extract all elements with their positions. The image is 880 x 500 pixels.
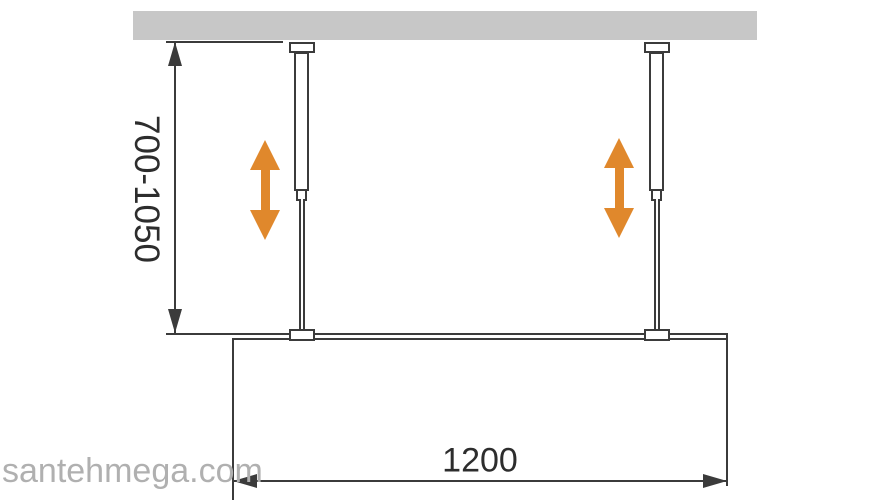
glass-right-edge [726, 333, 728, 486]
arrow-head-up [250, 140, 280, 170]
width-dimension-label: 1200 [442, 442, 518, 481]
vertical-double-arrow-icon [250, 140, 280, 240]
lower-rod [654, 199, 660, 331]
lower-rod [299, 199, 305, 331]
arrow-head-down [604, 208, 634, 238]
extension-line-top [166, 41, 283, 43]
vertical-double-arrow-icon [604, 138, 634, 238]
arrowhead-right-icon [703, 474, 727, 488]
shower-screen-diagram: 700-1050 1200 santehmega.com [0, 0, 880, 500]
arrowhead-down-icon [168, 309, 182, 333]
arrow-shaft [615, 167, 624, 209]
height-dimension-label: 700-1050 [126, 115, 166, 263]
arrow-shaft [261, 169, 270, 211]
arrowhead-up-icon [168, 42, 182, 66]
upper-tube [649, 52, 664, 191]
watermark: santehmega.com [2, 452, 263, 491]
arrow-head-up [604, 138, 634, 168]
rail-clamp [644, 329, 670, 341]
ceiling-bar [133, 11, 757, 40]
arrow-head-down [250, 210, 280, 240]
upper-tube [294, 52, 309, 191]
dimension-line-vertical [174, 42, 176, 333]
rail-clamp [289, 329, 315, 341]
